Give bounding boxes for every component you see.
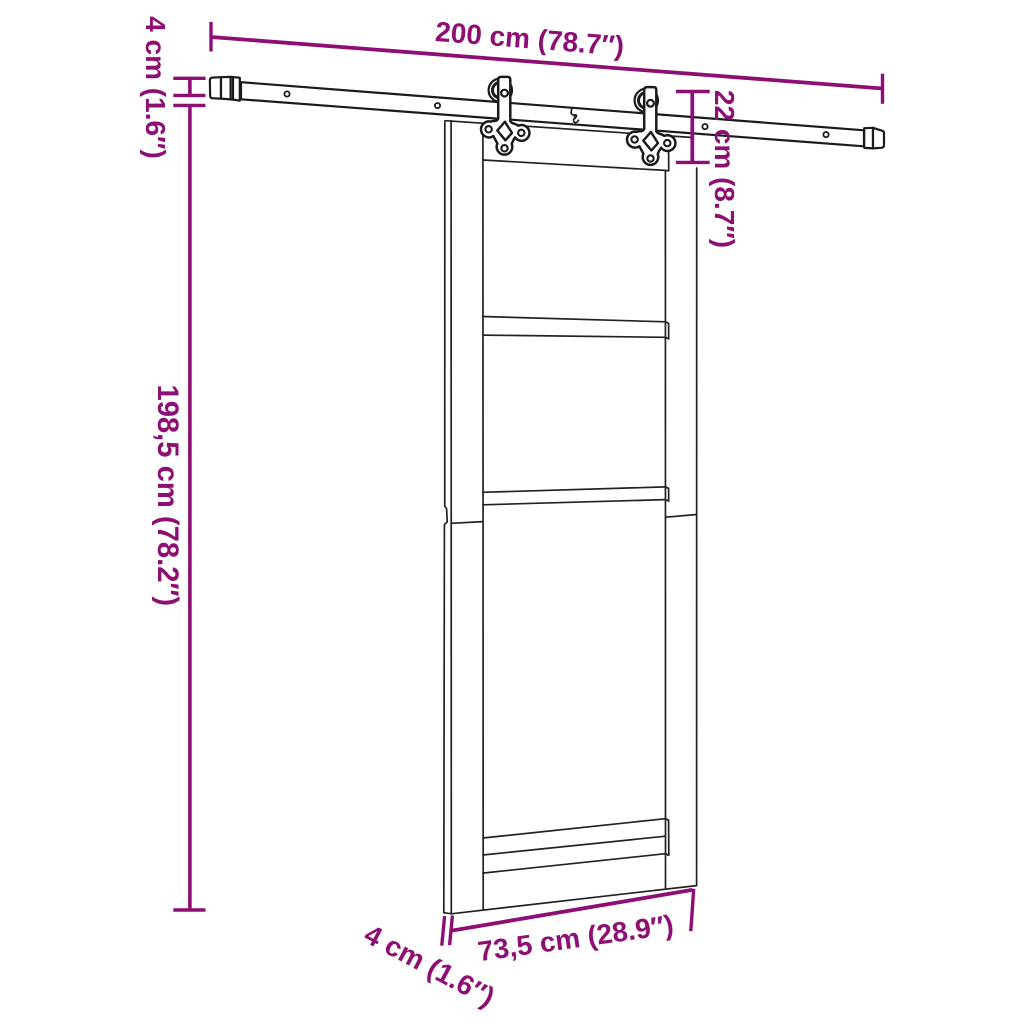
svg-text:22 cm (8.7″): 22 cm (8.7″) — [709, 90, 740, 248]
svg-text:4 cm (1.6″): 4 cm (1.6″) — [140, 16, 171, 159]
svg-text:198,5 cm (78.2″): 198,5 cm (78.2″) — [151, 384, 183, 606]
